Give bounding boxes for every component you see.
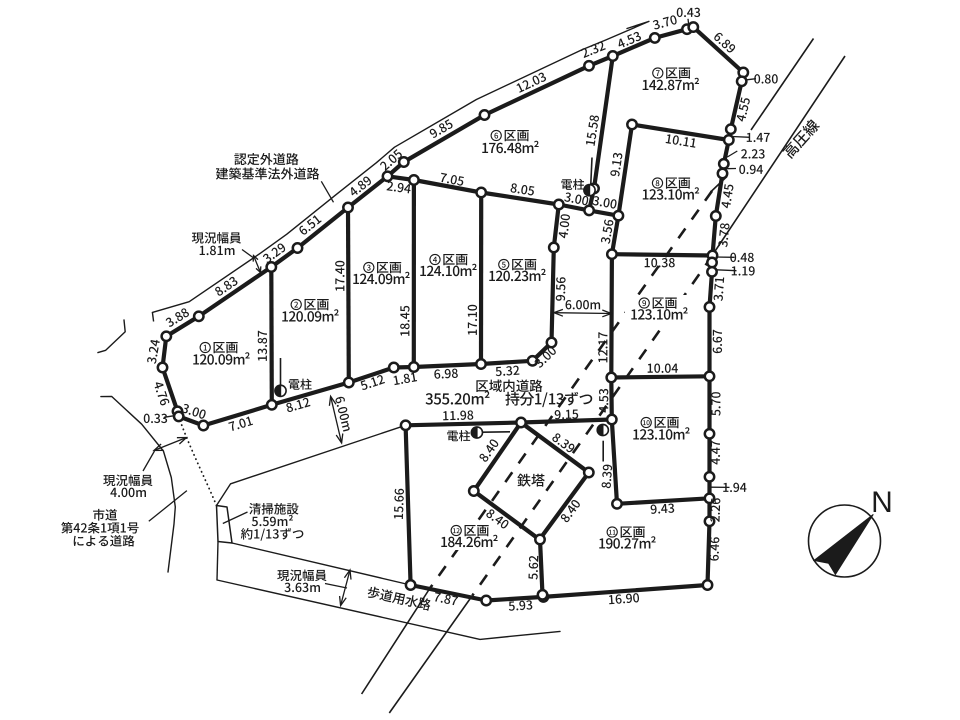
svg-text:N: N (871, 486, 893, 519)
